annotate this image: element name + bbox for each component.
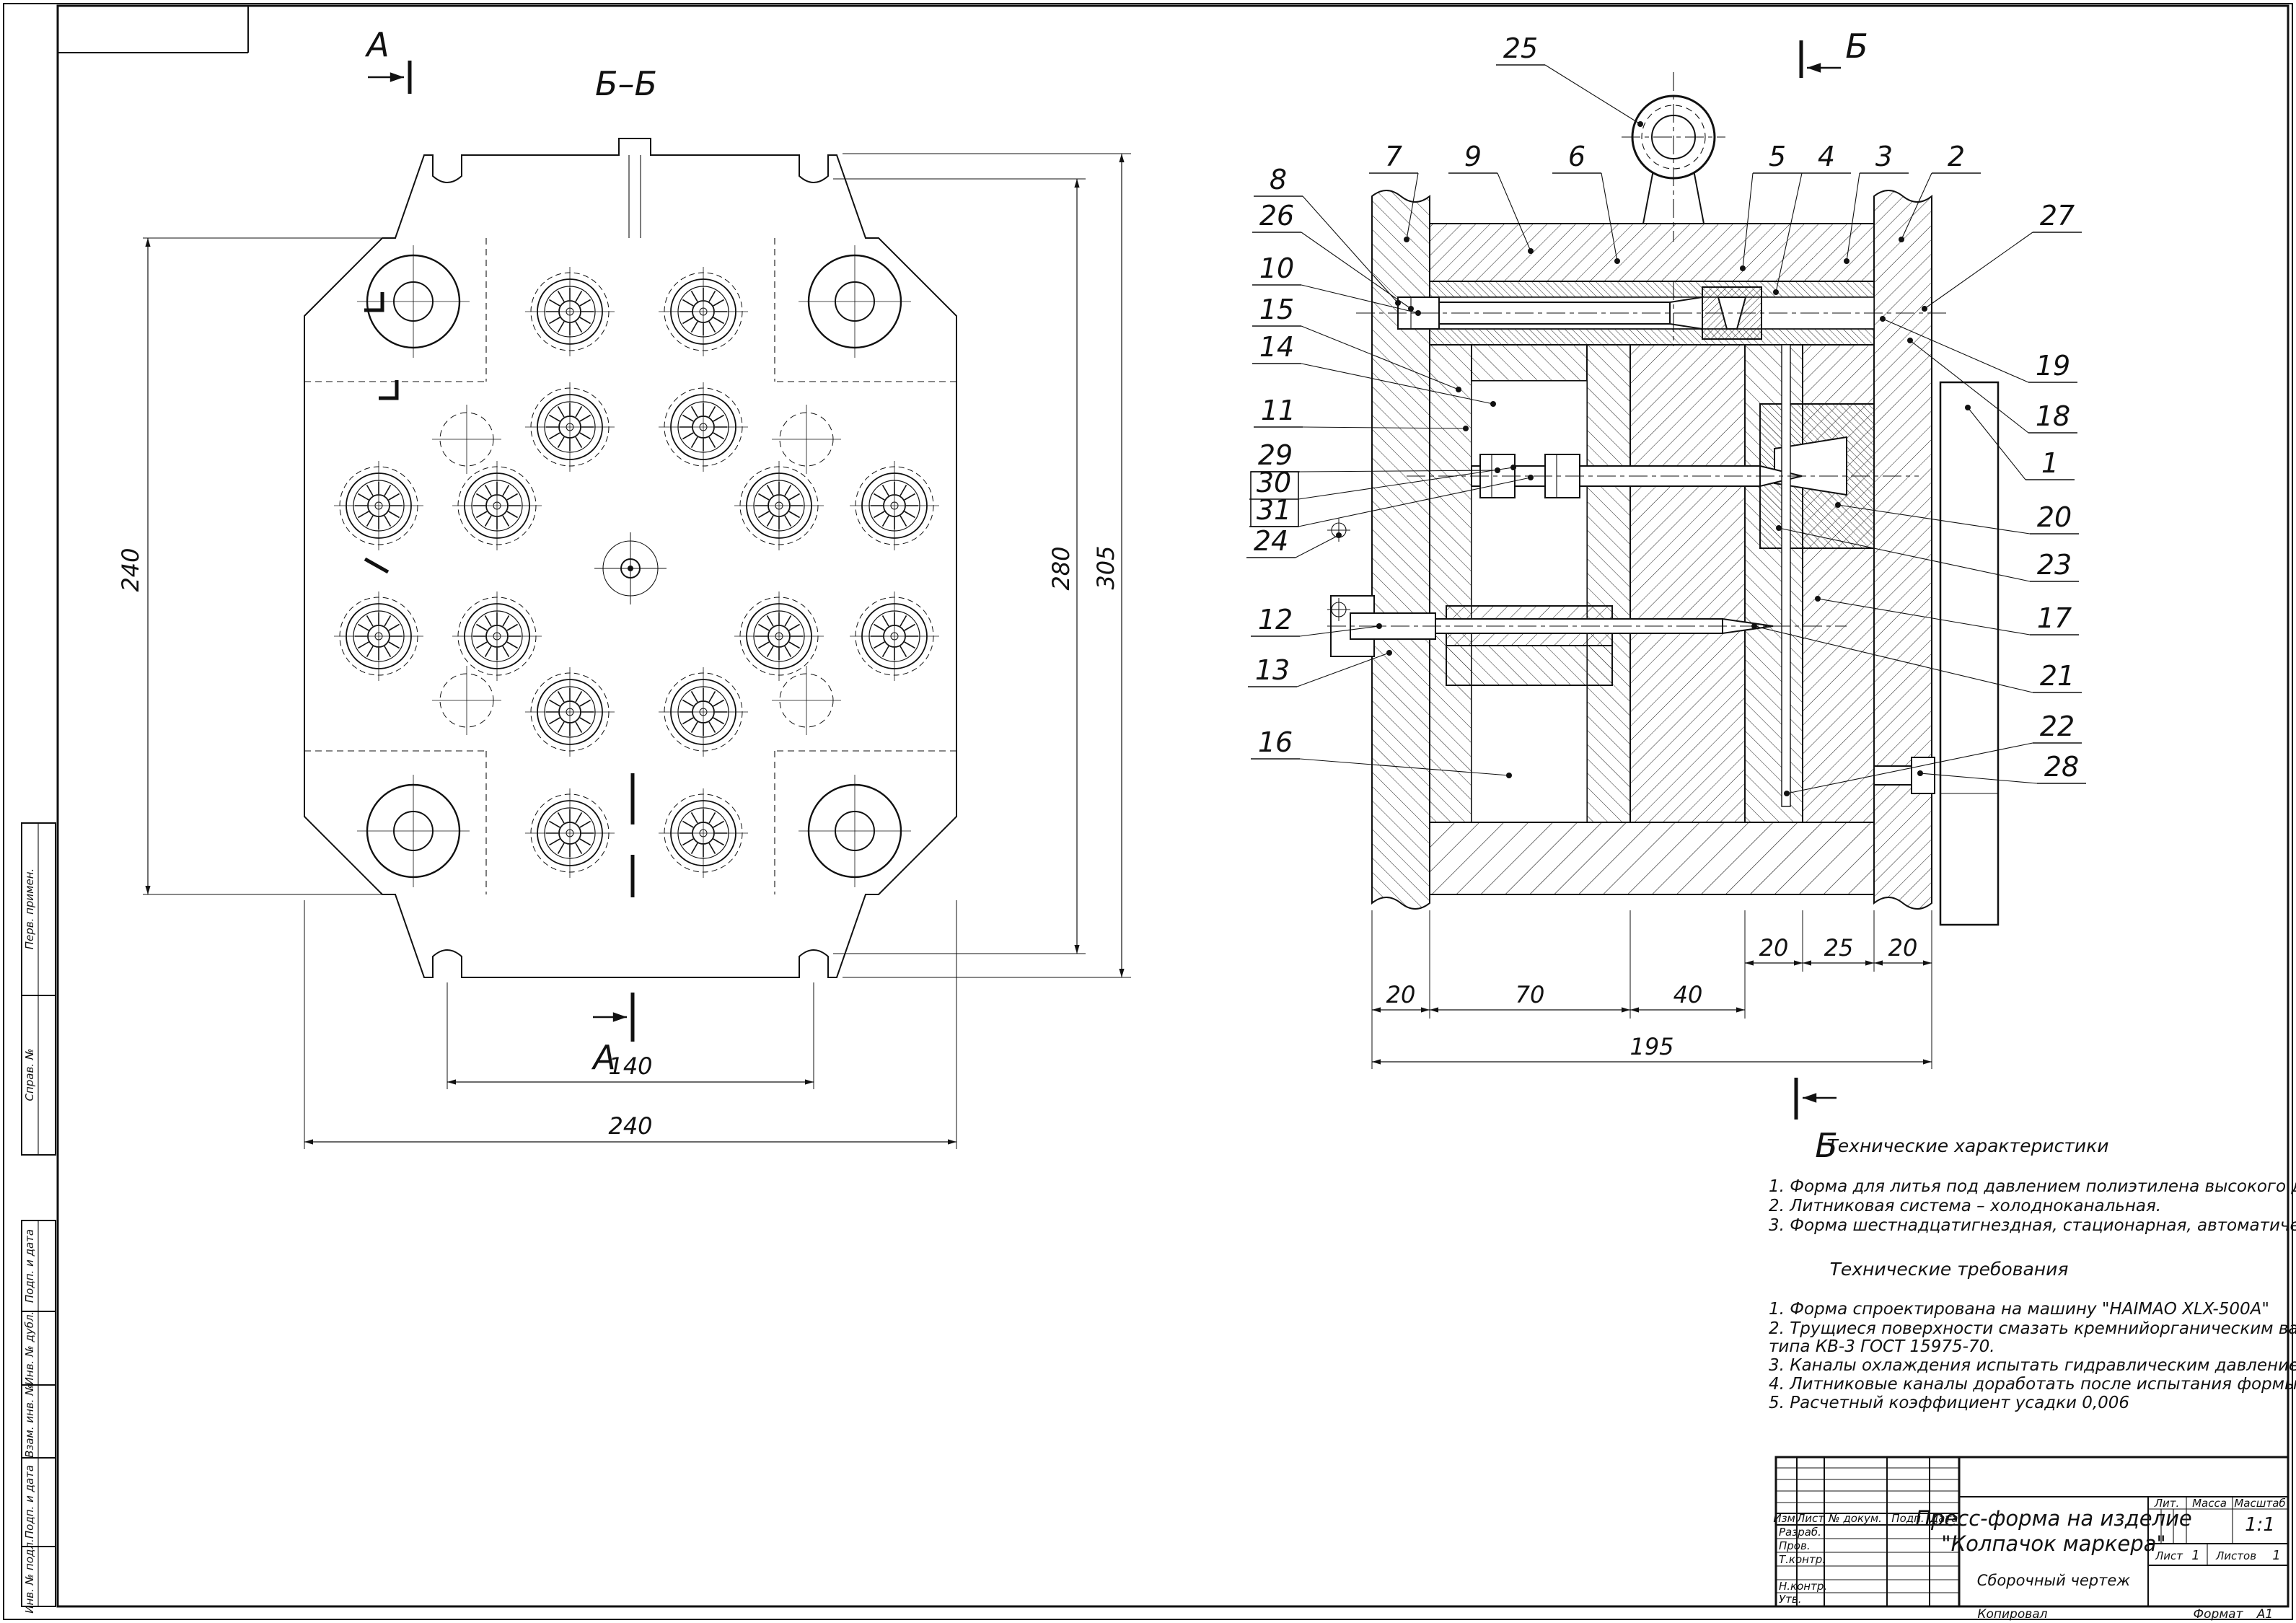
title-block: Изм. Лист № докум. Подп. Дата Разраб. Пр… — [1773, 1457, 2288, 1606]
callout-number-23: 23 — [2037, 549, 2072, 581]
callout-number-3: 3 — [1875, 141, 1893, 172]
tb-izm: Изм. — [1773, 1512, 1798, 1525]
tb-sheet-value: 1 — [2191, 1548, 2199, 1563]
callout-number-21: 21 — [2040, 660, 2075, 692]
callout-number-19: 19 — [2036, 350, 2070, 382]
stamp-podp-data-1: Подп. и дата — [23, 1229, 36, 1303]
callout-number-6: 6 — [1568, 141, 1585, 172]
callout-number-5: 5 — [1769, 141, 1786, 172]
tb-tkontr: Т.контр. — [1779, 1553, 1826, 1566]
ejector-plate-lower — [1446, 646, 1612, 685]
section-a-label-bottom: А — [591, 1038, 615, 1077]
tb-razrab: Разраб. — [1779, 1526, 1821, 1539]
tech-req-item-3: 3. Каналы охлаждения испытать гидравличе… — [1769, 1356, 2296, 1375]
ejector-housing-right-wall — [1587, 345, 1630, 822]
dim-70: 70 — [1516, 981, 1545, 1008]
callout-number-12: 12 — [1258, 604, 1293, 635]
callout-number-10: 10 — [1259, 252, 1294, 284]
section-a-label-top: А — [364, 25, 389, 64]
right-platen — [1874, 190, 1932, 909]
tb-sheets-label: Листов — [2215, 1549, 2256, 1562]
format-value: А1 — [2256, 1607, 2273, 1622]
callout-number-9: 9 — [1464, 141, 1482, 172]
drawing-sheet: { "page": {"copied": "Копировал", "forma… — [0, 0, 2296, 1623]
callout-number-14: 14 — [1259, 331, 1294, 363]
callout-number-4: 4 — [1818, 141, 1835, 172]
dim-305-right: 305 — [1092, 545, 1120, 589]
dim-195: 195 — [1629, 1033, 1673, 1060]
tb-dokum: № докум. — [1828, 1512, 1882, 1525]
stamp-sprav-no: Справ. № — [23, 1049, 36, 1101]
tech-req-item-2: 2. Трущиеся поверхности смазать кремнийо… — [1769, 1319, 2296, 1338]
ejector-pocket — [1472, 381, 1587, 822]
plan-view-label: Б–Б — [595, 64, 657, 103]
callout-number-8: 8 — [1270, 164, 1287, 195]
assembly-drawing: Перв. примен. Справ. № Подп. и дата Инв.… — [0, 0, 2296, 1623]
format-label: Формат — [2194, 1607, 2244, 1622]
callout-number-7: 7 — [1385, 141, 1402, 172]
tech-req-item-1: 1. Форма спроектирована на машину "HAIMA… — [1769, 1300, 2269, 1319]
dim-20-c: 20 — [1888, 934, 1918, 962]
tb-title-line2: "Колпачок маркера" — [1941, 1531, 2165, 1556]
ejector-housing-left-wall — [1430, 345, 1472, 822]
tb-list: Лист — [1796, 1512, 1825, 1525]
copied-label: Копировал — [1977, 1607, 2047, 1622]
tech-char-title: Технические характеристики — [1827, 1135, 2109, 1156]
tb-sheet-label: Лист — [2155, 1549, 2183, 1562]
stamp-podp-data-2: Подп. и дата — [23, 1465, 36, 1539]
callout-number-20: 20 — [2037, 501, 2072, 533]
tb-scale-value: 1:1 — [2245, 1514, 2275, 1536]
callout-number-28: 28 — [2044, 751, 2079, 783]
callout-number-17: 17 — [2037, 602, 2072, 634]
callout-number-16: 16 — [1258, 726, 1293, 758]
ejector-housing-top — [1472, 345, 1587, 381]
stamp-inv-dubl: Инв. № дубл. — [23, 1311, 36, 1386]
tech-char-item-1: 1. Форма для литья под давлением полиэти… — [1769, 1177, 2296, 1196]
stamp-vzam-inv: Взам. инв. № — [23, 1384, 36, 1458]
tb-mass-label: Масса — [2192, 1497, 2227, 1510]
tech-req-item-2b: типа КВ-3 ГОСТ 15975-70. — [1769, 1337, 1995, 1356]
callout-number-26: 26 — [1259, 200, 1294, 232]
runner-plate-lower — [1430, 329, 1874, 345]
callout-number-22: 22 — [2040, 711, 2075, 742]
callout-number-1: 1 — [2041, 447, 2059, 479]
tech-req-title: Технические требования — [1830, 1259, 2069, 1280]
dim-240-bottom: 240 — [608, 1112, 652, 1140]
runner-plate-upper — [1430, 281, 1874, 297]
callout-number-31: 31 — [1257, 494, 1291, 526]
tech-char-item-3: 3. Форма шестнадцатигнездная, стационарн… — [1769, 1216, 2296, 1235]
tb-scale-label: Масштаб — [2234, 1497, 2285, 1510]
support-plate — [1630, 345, 1745, 822]
tb-lit-label: Лит. — [2154, 1497, 2180, 1510]
callout-number-15: 15 — [1259, 294, 1294, 325]
dim-20-a: 20 — [1386, 981, 1416, 1008]
callout-number-11: 11 — [1261, 395, 1296, 426]
callout-number-13: 13 — [1255, 654, 1290, 686]
dim-40: 40 — [1673, 981, 1703, 1008]
ejector-pin — [1782, 345, 1790, 806]
tb-prov: Пров. — [1779, 1539, 1811, 1552]
tech-char-item-2: 2. Литниковая система – холодноканальная… — [1769, 1197, 2161, 1215]
dim-20-b: 20 — [1759, 934, 1789, 962]
tb-sheets-value: 1 — [2272, 1548, 2280, 1563]
top-clamp-plate — [1430, 224, 1874, 281]
stamp-inv-podl: Инв. № подл. — [23, 1539, 36, 1613]
base-plate — [1430, 822, 1874, 894]
stamp-perv-primen: Перв. примен. — [23, 868, 36, 950]
dim-25: 25 — [1824, 934, 1854, 962]
tb-doc-type: Сборочный чертеж — [1977, 1572, 2130, 1589]
tb-nkontr: Н.контр. — [1779, 1580, 1827, 1593]
tb-title-line1: Пресс-форма на изделие — [1915, 1506, 2192, 1531]
clamping-plate-view — [1940, 382, 1998, 925]
dim-240-left: 240 — [117, 547, 144, 591]
tech-req-item-4: 4. Литниковые каналы доработать после ис… — [1769, 1375, 2296, 1394]
section-b-label-top: Б — [1845, 27, 1868, 66]
callout-number-27: 27 — [2040, 200, 2075, 232]
callout-number-2: 2 — [1948, 141, 1965, 172]
callout-number-25: 25 — [1503, 32, 1538, 64]
tech-req-item-5: 5. Расчетный коэффициент усадки 0,006 — [1769, 1394, 2129, 1412]
tb-utv: Утв. — [1779, 1593, 1802, 1606]
callout-number-24: 24 — [1254, 525, 1288, 557]
callout-number-18: 18 — [2036, 400, 2070, 432]
dim-280-right: 280 — [1047, 546, 1075, 590]
